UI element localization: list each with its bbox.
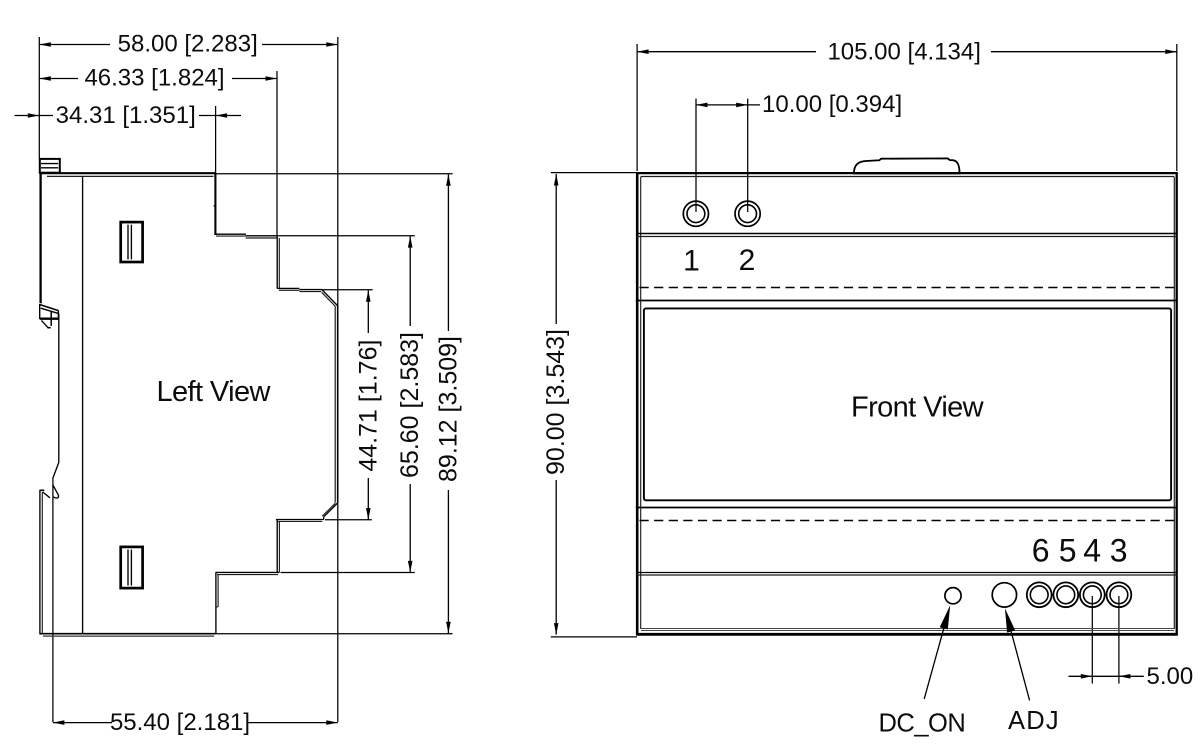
svg-text:DC_ON: DC_ON (879, 709, 966, 737)
svg-text:10.00 [0.394]: 10.00 [0.394] (762, 91, 902, 118)
svg-text:Left View: Left View (157, 376, 272, 408)
svg-text:46.33 [1.824]: 46.33 [1.824] (84, 64, 224, 91)
svg-text:3: 3 (1110, 533, 1128, 569)
svg-text:5: 5 (1059, 533, 1077, 569)
svg-text:5.00: 5.00 (1147, 663, 1194, 690)
svg-text:4: 4 (1083, 533, 1101, 569)
svg-text:44.71 [1.76]: 44.71 [1.76] (354, 340, 382, 472)
svg-text:ADJ: ADJ (1008, 707, 1060, 735)
svg-text:55.40 [2.181]: 55.40 [2.181] (110, 709, 250, 736)
svg-text:6: 6 (1032, 533, 1050, 569)
svg-text:90.00 [3.543]: 90.00 [3.543] (542, 329, 570, 475)
svg-text:2: 2 (739, 244, 756, 277)
svg-text:58.00 [2.283]: 58.00 [2.283] (118, 30, 258, 57)
svg-text:34.31 [1.351]: 34.31 [1.351] (56, 102, 196, 129)
svg-text:Front View: Front View (851, 391, 985, 423)
svg-text:89.12 [3.509]: 89.12 [3.509] (434, 336, 462, 482)
svg-text:65.60 [2.583]: 65.60 [2.583] (396, 332, 424, 478)
svg-text:105.00 [4.134]: 105.00 [4.134] (827, 39, 980, 66)
svg-text:1: 1 (683, 245, 700, 278)
